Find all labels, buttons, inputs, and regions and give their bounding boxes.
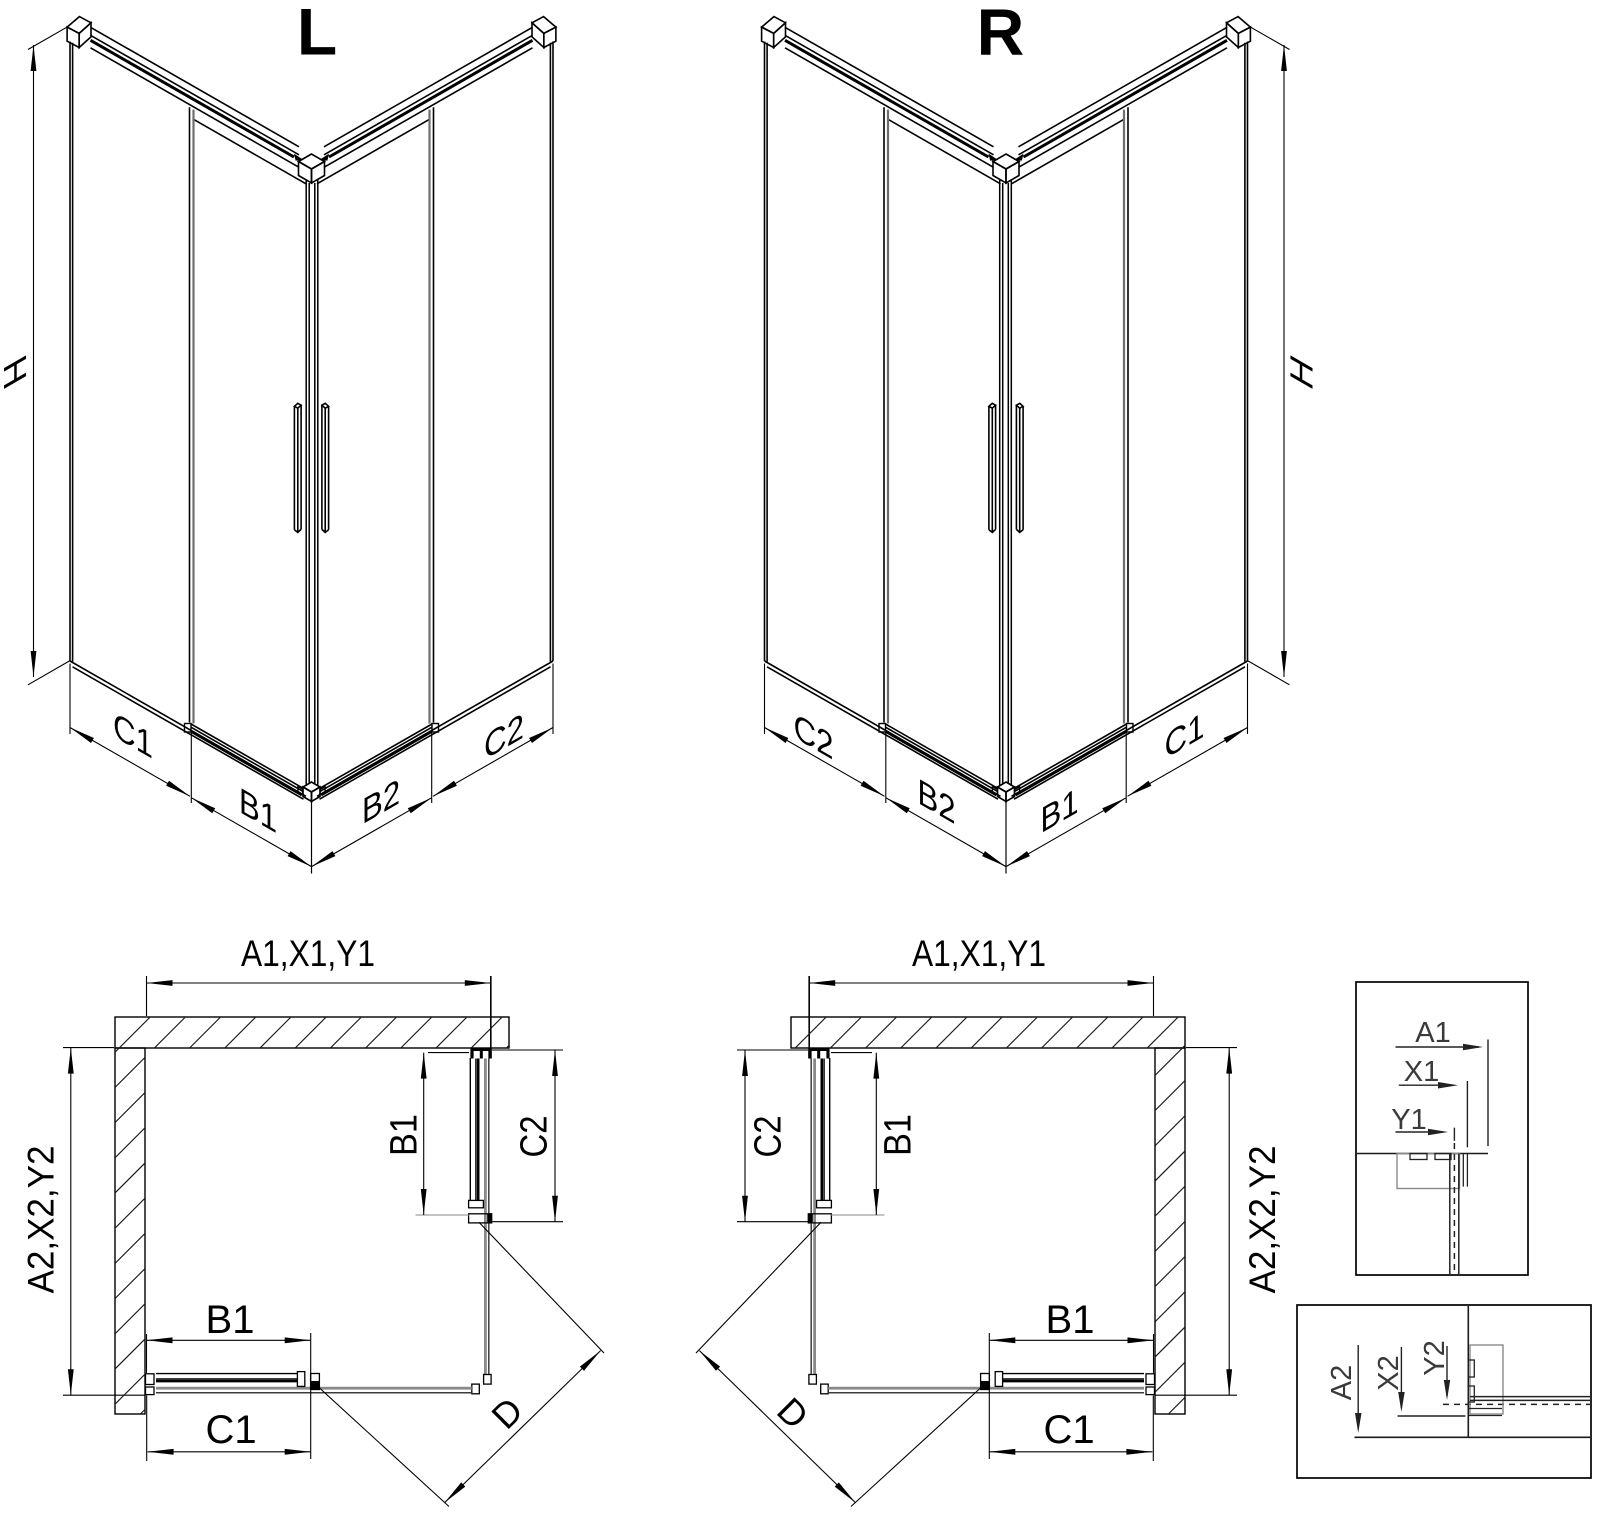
svg-text:B1: B1 [383,1114,425,1156]
svg-text:C2: C2 [513,1116,555,1158]
svg-text:A1: A1 [1415,1017,1450,1049]
svg-text:C1: C1 [1043,1408,1094,1452]
svg-text:B1: B1 [1046,1298,1095,1342]
svg-text:X1: X1 [1404,1056,1439,1088]
svg-text:X2: X2 [1373,1355,1405,1390]
svg-text:L: L [297,0,337,69]
svg-text:B1: B1 [877,1114,919,1156]
svg-text:A1,X1,Y1: A1,X1,Y1 [241,933,375,974]
svg-text:A2,X2,Y2: A2,X2,Y2 [1242,1146,1283,1294]
svg-text:R: R [977,0,1025,69]
svg-text:A2,X2,Y2: A2,X2,Y2 [20,1146,61,1294]
svg-text:C1: C1 [205,1408,256,1452]
svg-text:A1,X1,Y1: A1,X1,Y1 [912,933,1046,974]
svg-text:A2: A2 [1326,1365,1358,1400]
svg-text:Y1: Y1 [1391,1104,1426,1136]
svg-text:C2: C2 [747,1116,789,1158]
svg-text:Y2: Y2 [1419,1340,1451,1375]
svg-text:B1: B1 [206,1298,255,1342]
